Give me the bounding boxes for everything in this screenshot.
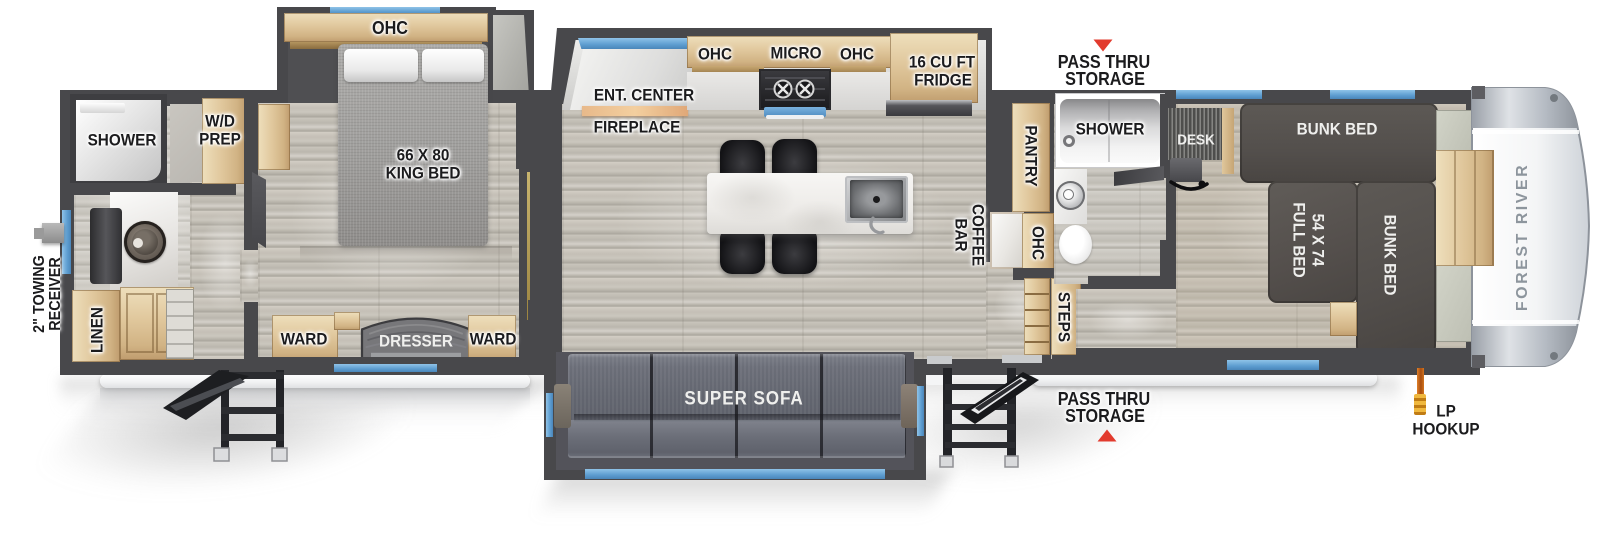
svg-text:FOREST RIVER: FOREST RIVER [1514, 163, 1531, 311]
